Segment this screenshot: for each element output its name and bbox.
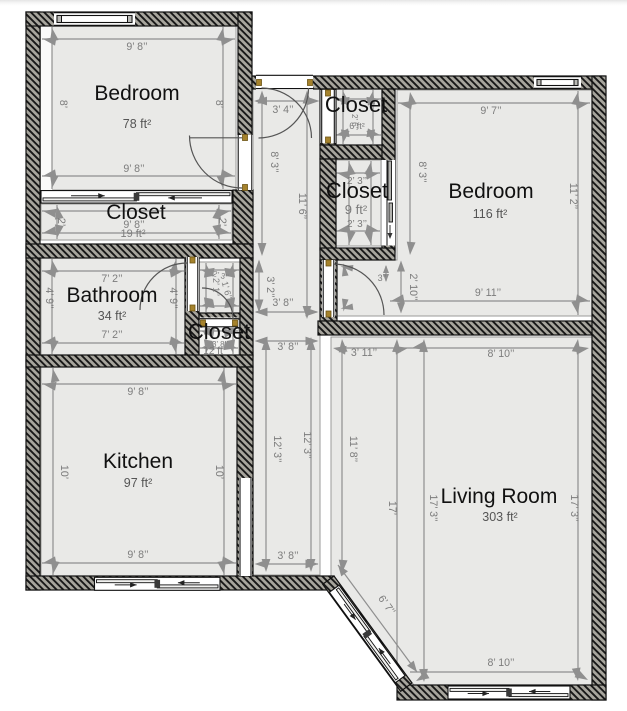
svg-text:8’ 3’’: 8’ 3’’ (416, 161, 428, 182)
svg-text:8’ 10’’: 8’ 10’’ (487, 657, 514, 669)
svg-text:17’ 3’’: 17’ 3’’ (427, 494, 439, 521)
svg-text:8’: 8’ (213, 100, 225, 108)
svg-text:97 ft²: 97 ft² (124, 476, 153, 490)
svg-text:2’ 10’’: 2’ 10’’ (407, 273, 419, 300)
svg-text:3’ 4’’: 3’ 4’’ (272, 104, 293, 116)
svg-text:9’ 8’’: 9’ 8’’ (127, 549, 148, 561)
svg-text:7’ 2’’: 7’ 2’’ (101, 329, 122, 341)
svg-text:78 ft²: 78 ft² (123, 117, 152, 131)
svg-text:116 ft²: 116 ft² (473, 207, 508, 221)
svg-text:9 ft²: 9 ft² (345, 202, 368, 217)
svg-text:Bedroom: Bedroom (448, 180, 533, 203)
svg-text:Bathroom: Bathroom (66, 284, 157, 307)
svg-text:34 ft²: 34 ft² (98, 309, 127, 323)
svg-text:3’ 8’’: 3’ 8’’ (277, 550, 298, 562)
svg-text:3’ 8’’: 3’ 8’’ (272, 297, 293, 309)
svg-text:9’ 7’’: 9’ 7’’ (480, 105, 501, 117)
svg-text:3’ 2’’: 3’ 2’’ (264, 276, 276, 297)
svg-text:12 ft: 12 ft (203, 346, 223, 357)
svg-text:2’: 2’ (55, 218, 67, 227)
svg-text:3’ 8’’: 3’ 8’’ (277, 341, 298, 353)
svg-text:Kitchen: Kitchen (103, 450, 173, 473)
svg-text:12’ 3’’: 12’ 3’’ (271, 435, 283, 462)
svg-text:3’’: 3’’ (378, 273, 387, 283)
svg-text:9’ 8’’: 9’ 8’’ (126, 41, 147, 53)
svg-text:4’ 9’’: 4’ 9’’ (167, 287, 179, 308)
svg-text:3’ 11’’: 3’ 11’’ (351, 347, 377, 359)
svg-text:9’ 8’’: 9’ 8’’ (127, 386, 148, 398)
svg-text:9’ 8’’: 9’ 8’’ (123, 163, 144, 175)
svg-text:303 ft²: 303 ft² (482, 510, 517, 524)
svg-text:4’ 9’’: 4’ 9’’ (43, 287, 55, 308)
svg-text:11’ 8’’: 11’ 8’’ (347, 436, 359, 462)
svg-text:8’ 10’’: 8’ 10’’ (487, 348, 514, 360)
svg-text:11’ 6’’: 11’ 6’’ (296, 193, 308, 219)
svg-text:19 ft²: 19 ft² (120, 228, 145, 240)
svg-text:8’: 8’ (57, 100, 69, 108)
svg-text:10’: 10’ (58, 465, 70, 479)
svg-text:8’ 3’’: 8’ 3’’ (268, 151, 280, 172)
svg-text:17’ 3’’: 17’ 3’’ (568, 494, 580, 521)
svg-text:9’ 11’’: 9’ 11’’ (475, 287, 501, 299)
svg-text:2’ 1’’: 2’ 1’’ (211, 278, 221, 296)
svg-text:Bedroom: Bedroom (94, 82, 179, 105)
svg-text:Living Room: Living Room (441, 485, 558, 508)
svg-text:10’: 10’ (213, 465, 225, 479)
svg-text:12’ 3’’: 12’ 3’’ (301, 431, 313, 458)
svg-text:Closet: Closet (326, 178, 388, 203)
svg-text:2’ 3’’: 2’ 3’’ (347, 219, 367, 230)
svg-text:17’: 17’ (386, 501, 398, 515)
svg-text:11’ 2’’: 11’ 2’’ (567, 183, 579, 209)
svg-text:6 ft²: 6 ft² (349, 121, 365, 131)
svg-text:2’: 2’ (216, 218, 228, 227)
